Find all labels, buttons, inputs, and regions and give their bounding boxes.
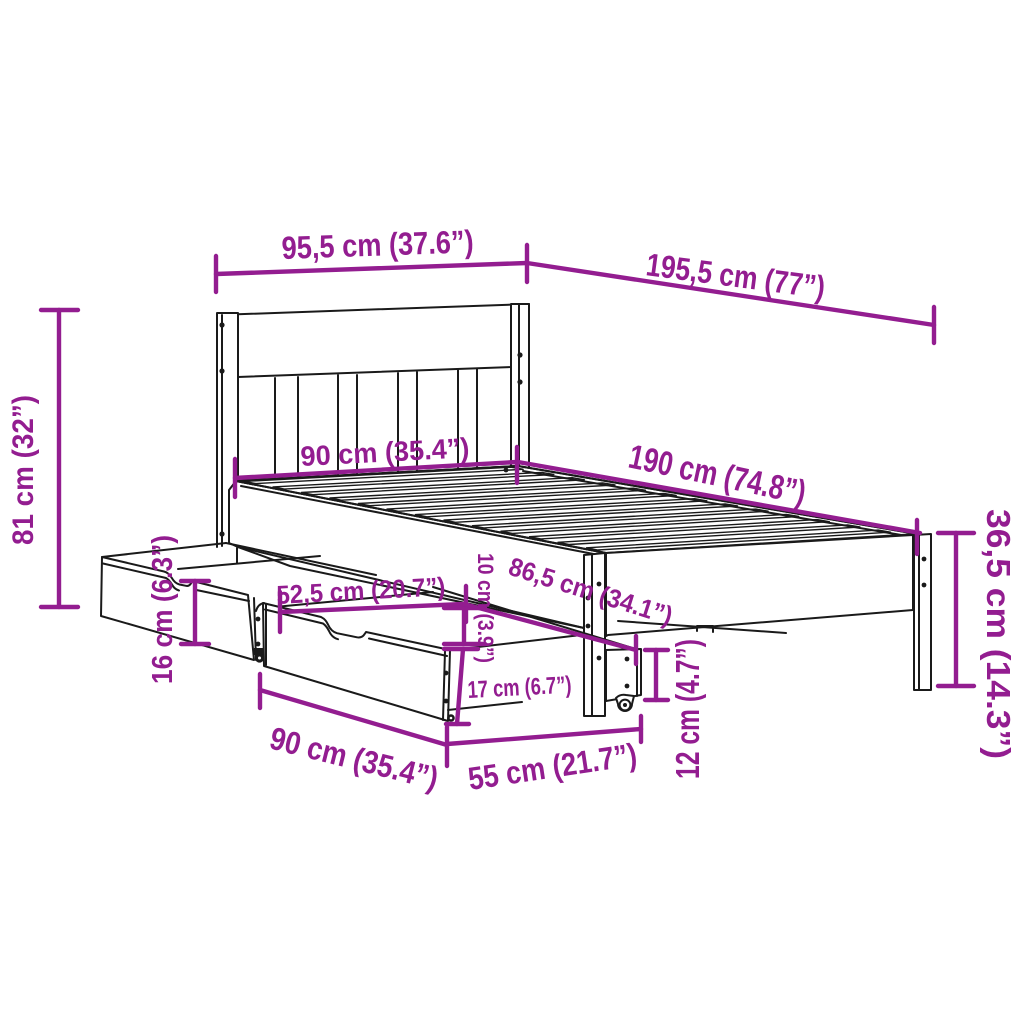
svg-text:16 cm (6.3”): 16 cm (6.3”) xyxy=(147,535,179,684)
svg-text:95,5 cm (37.6”): 95,5 cm (37.6”) xyxy=(281,223,474,266)
svg-text:17 cm (6.7”): 17 cm (6.7”) xyxy=(467,672,572,704)
svg-text:81 cm (32”): 81 cm (32”) xyxy=(7,395,40,545)
svg-text:36,5 cm (14.3”): 36,5 cm (14.3”) xyxy=(980,509,1017,759)
svg-text:10 cm (3.9”): 10 cm (3.9”) xyxy=(473,553,498,663)
svg-text:12 cm (4.7”): 12 cm (4.7”) xyxy=(669,639,706,779)
